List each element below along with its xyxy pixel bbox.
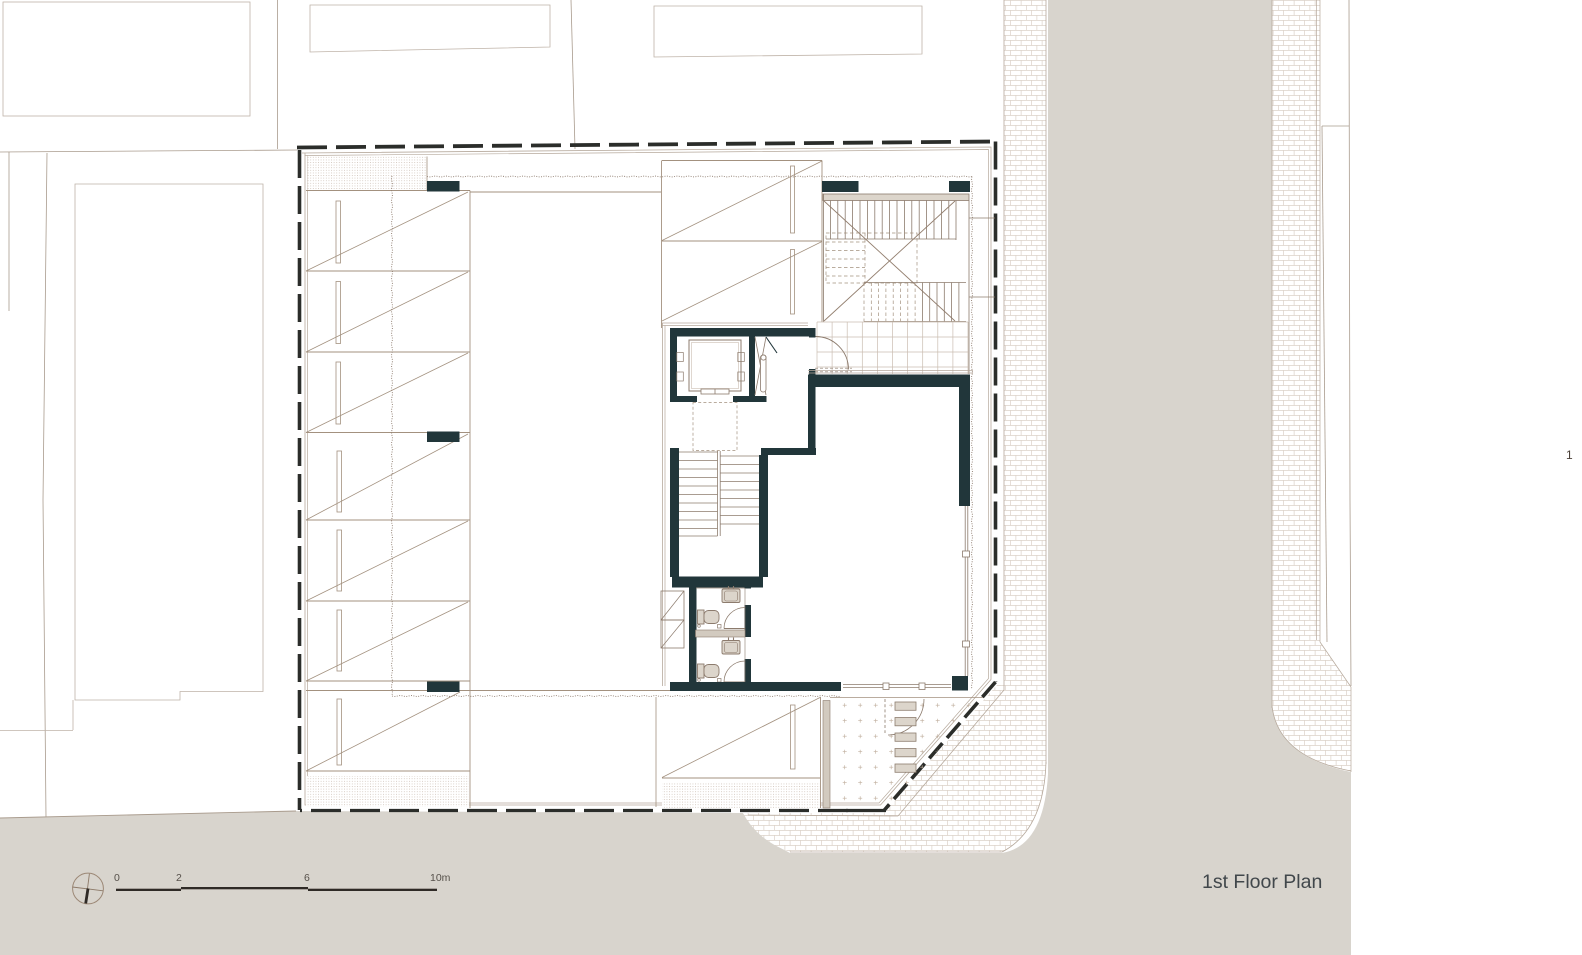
svg-text:0: 0: [114, 872, 120, 884]
svg-text:2: 2: [176, 872, 182, 884]
svg-text:6: 6: [304, 872, 310, 884]
svg-text:1: 1: [1566, 448, 1573, 462]
svg-text:10m: 10m: [430, 872, 451, 884]
svg-text:1st Floor Plan: 1st Floor Plan: [1202, 871, 1322, 893]
